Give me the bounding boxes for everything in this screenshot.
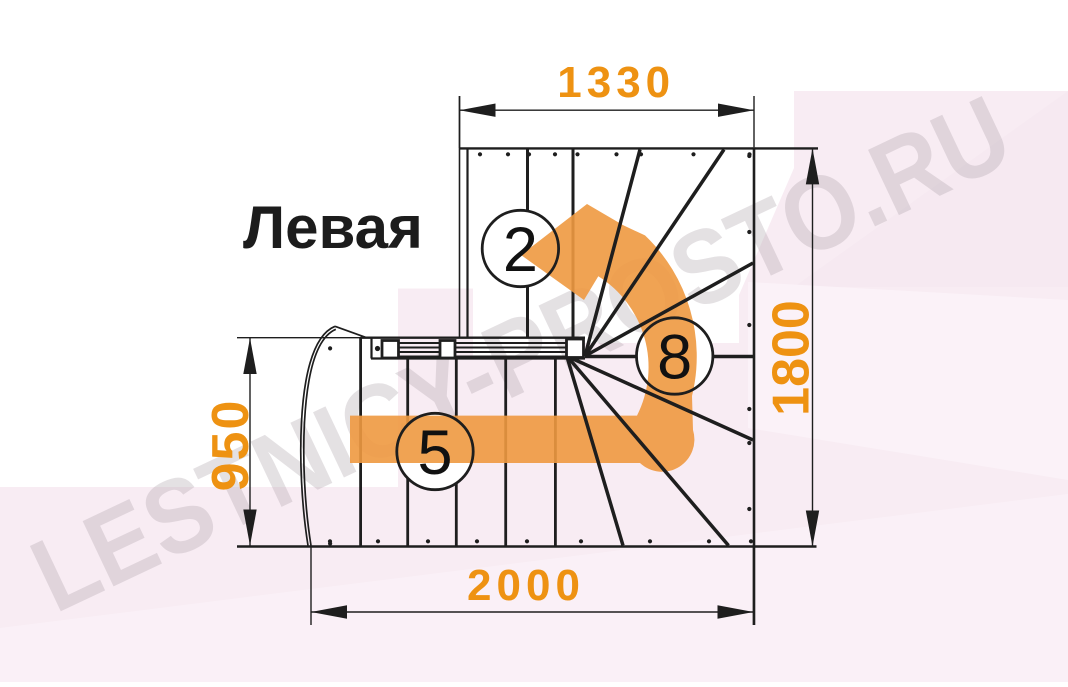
- svg-text:950: 950: [202, 399, 260, 492]
- svg-text:8: 8: [657, 323, 692, 393]
- svg-text:1800: 1800: [763, 300, 821, 416]
- svg-text:1330: 1330: [557, 58, 675, 107]
- svg-text:5: 5: [417, 418, 452, 488]
- svg-text:Левая: Левая: [243, 194, 423, 261]
- svg-text:2: 2: [503, 215, 538, 285]
- svg-text:2000: 2000: [467, 561, 585, 610]
